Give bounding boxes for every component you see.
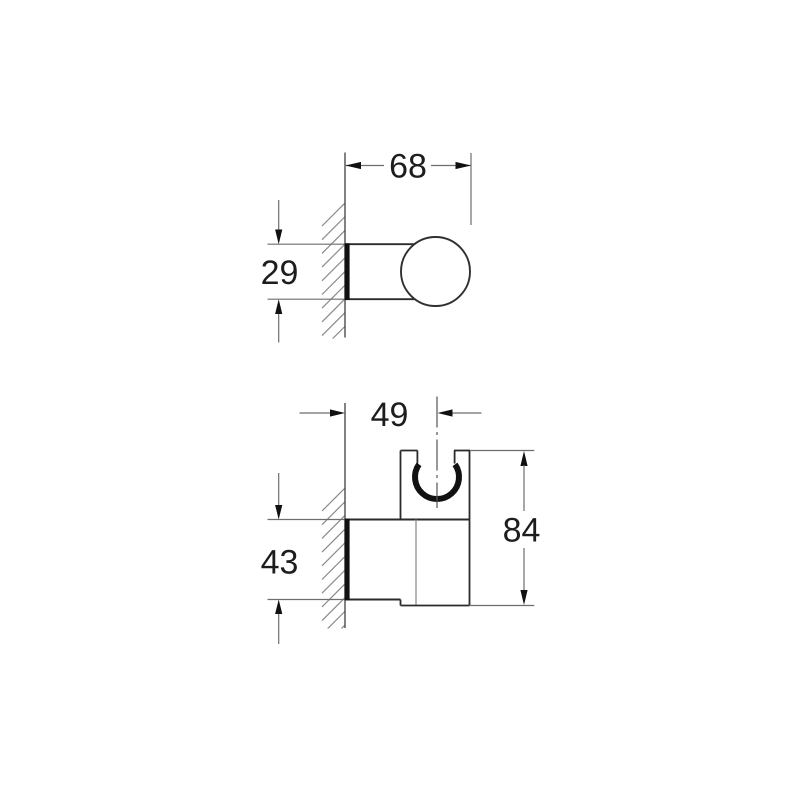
svg-text:84: 84 [503,512,541,550]
svg-text:43: 43 [261,544,299,582]
svg-text:29: 29 [261,254,299,292]
svg-text:68: 68 [389,148,427,186]
svg-text:49: 49 [371,396,409,434]
